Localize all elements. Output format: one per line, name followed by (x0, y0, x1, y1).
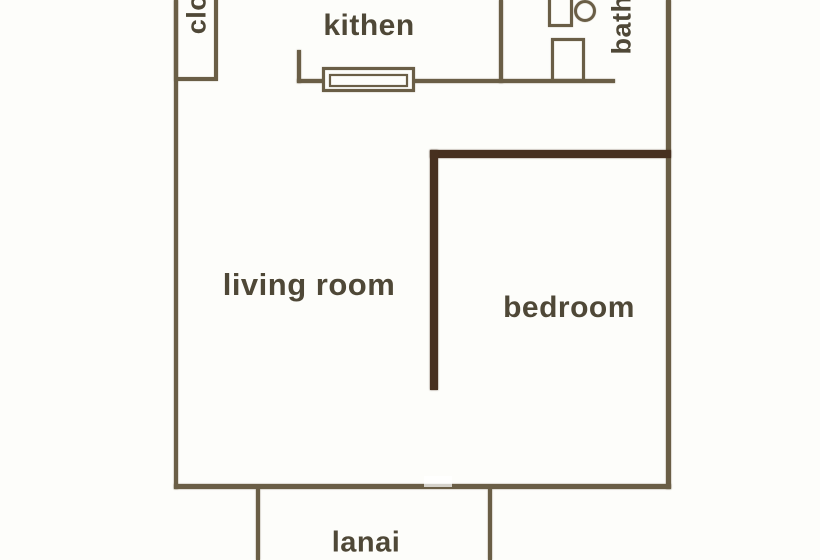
lanai-wall-right (488, 489, 492, 560)
room-label-closet: clo (182, 0, 213, 34)
floor-plan: clo kithen bath living room bedroom lana… (0, 0, 820, 560)
bedroom-wall-left (430, 150, 438, 390)
lanai-door-gap (424, 476, 452, 487)
bath-sink (551, 38, 585, 82)
toilet-tank (548, 0, 573, 27)
kitchen-counter-inner (329, 74, 408, 87)
outer-wall-right (666, 0, 671, 489)
room-label-kitchen: kithen (323, 9, 414, 43)
toilet-bowl-icon (574, 0, 596, 22)
room-label-bath: bath (607, 0, 638, 55)
lanai-wall-left (256, 489, 260, 560)
room-label-living-room: living room (223, 267, 396, 303)
kitchen-bath-divider-wall (499, 0, 503, 83)
room-label-lanai: lanai (332, 527, 401, 560)
outer-wall-bottom (174, 484, 671, 489)
room-label-bedroom: bedroom (503, 291, 635, 325)
kitchen-counter-wall-stub (297, 50, 301, 83)
bedroom-wall-top (430, 150, 671, 158)
